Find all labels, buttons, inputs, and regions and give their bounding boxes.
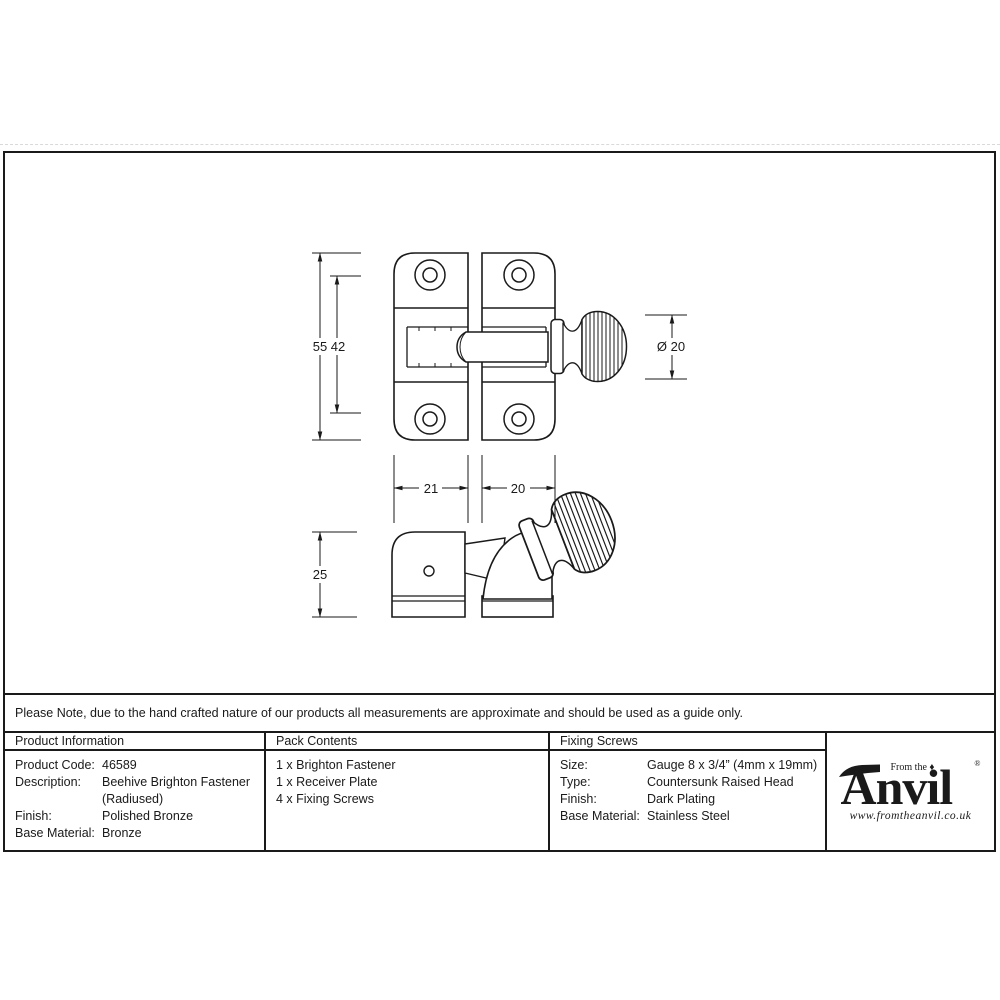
dim-20: 20 [511, 481, 525, 496]
table-row: Type:Countersunk Raised Head [560, 774, 821, 791]
list-item: 4 x Fixing Screws [276, 791, 544, 808]
spec-table: Product Information Product Code:46589 D… [5, 731, 994, 850]
technical-drawing-area: 55 42 Ø 20 21 20 25 [5, 153, 994, 693]
table-row: Finish:Polished Bronze [15, 808, 260, 825]
fixing-screws-column: Fixing Screws Size:Gauge 8 x 3/4” (4mm x… [548, 733, 825, 850]
table-row: Description:Beehive Brighton Fastener [15, 774, 260, 791]
row-value: Countersunk Raised Head [647, 774, 821, 791]
logo-website-text: www.fromtheanvil.co.uk [841, 810, 981, 822]
pack-contents-column: Pack Contents 1 x Brighton Fastener 1 x … [264, 733, 548, 850]
row-label: Finish: [15, 808, 102, 825]
anvil-icon [839, 764, 881, 781]
pack-contents-body: 1 x Brighton Fastener 1 x Receiver Plate… [266, 751, 548, 808]
dim-21: 21 [424, 481, 438, 496]
row-value: Polished Bronze [102, 808, 260, 825]
beehive-knob-top-view [551, 312, 627, 382]
row-label [15, 791, 102, 808]
fixing-screws-body: Size:Gauge 8 x 3/4” (4mm x 19mm) Type:Co… [550, 751, 825, 825]
row-label: Product Code: [15, 757, 102, 774]
row-value: Gauge 8 x 3/4” (4mm x 19mm) [647, 757, 821, 774]
product-information-body: Product Code:46589 Description:Beehive B… [5, 751, 264, 842]
pack-contents-header: Pack Contents [266, 733, 548, 751]
product-information-header: Product Information [5, 733, 264, 751]
row-label: Finish: [560, 791, 647, 808]
product-information-column: Product Information Product Code:46589 D… [5, 733, 264, 850]
row-value: Bronze [102, 825, 260, 842]
row-label: Base Material: [15, 825, 102, 842]
page-edge-dashed-line [0, 144, 1000, 145]
row-value: Dark Plating [647, 791, 821, 808]
table-row: Size:Gauge 8 x 3/4” (4mm x 19mm) [560, 757, 821, 774]
brand-logo-cell: Anvil From the ♦ ® www.fromtheanvil.co.u… [825, 733, 994, 850]
from-the-anvil-logo: Anvil From the ♦ ® www.fromtheanvil.co.u… [841, 760, 981, 824]
measurement-note-row: Please Note, due to the hand crafted nat… [5, 693, 994, 731]
dim-25: 25 [313, 567, 327, 582]
list-item: 1 x Receiver Plate [276, 774, 544, 791]
table-row: Product Code:46589 [15, 757, 260, 774]
dim-knob-diameter: Ø 20 [657, 339, 685, 354]
table-row: Base Material:Stainless Steel [560, 808, 821, 825]
row-value: Stainless Steel [647, 808, 821, 825]
logo-from-the-text: From the ♦ [891, 762, 935, 773]
row-label: Description: [15, 774, 102, 791]
table-row: (Radiused) [15, 791, 260, 808]
side-screw-hole [424, 566, 434, 576]
page: { "note": "Please Note, due to the hand … [0, 0, 1000, 1000]
side-view [392, 482, 626, 617]
row-label: Type: [560, 774, 647, 791]
fastener-technical-drawing: 55 42 Ø 20 21 20 25 [5, 153, 994, 693]
dim-55: 55 [313, 339, 327, 354]
table-row: Base Material:Bronze [15, 825, 260, 842]
fixing-screws-header: Fixing Screws [550, 733, 825, 751]
measurement-note-text: Please Note, due to the hand crafted nat… [15, 706, 743, 720]
row-value: (Radiused) [102, 791, 260, 808]
registered-trademark-symbol: ® [974, 759, 980, 768]
top-view-plate [394, 253, 627, 440]
row-label: Size: [560, 757, 647, 774]
list-item: 1 x Brighton Fastener [276, 757, 544, 774]
row-label: Base Material: [560, 808, 647, 825]
row-value: 46589 [102, 757, 260, 774]
dim-42: 42 [331, 339, 345, 354]
bolt [457, 332, 548, 362]
row-value: Beehive Brighton Fastener [102, 774, 260, 791]
table-row: Finish:Dark Plating [560, 791, 821, 808]
spec-sheet-frame: 55 42 Ø 20 21 20 25 Please Note, due to … [3, 151, 996, 852]
